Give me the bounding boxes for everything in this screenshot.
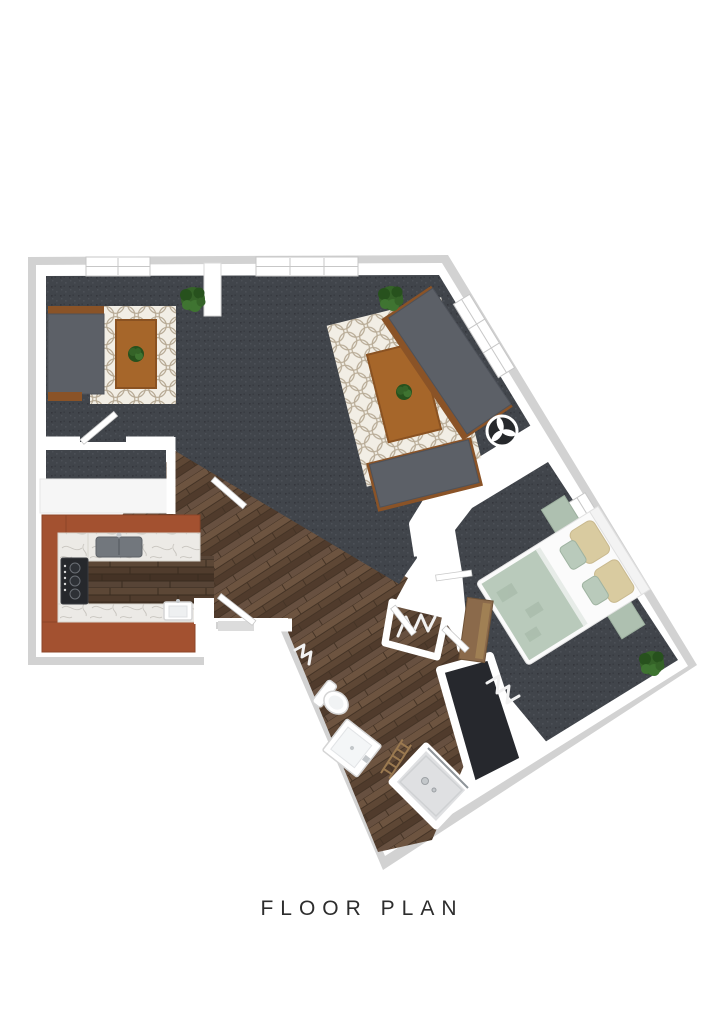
kitchen-cabinet-bottom — [42, 622, 195, 652]
prep-sink-basin — [169, 606, 187, 617]
round-side-table — [487, 416, 517, 446]
sofa-wood-arm — [48, 392, 82, 401]
prep-faucet-icon — [176, 599, 180, 603]
den-lower-wall — [40, 479, 174, 513]
sofa — [48, 314, 104, 394]
shower-drain-icon — [422, 778, 429, 785]
window — [86, 257, 150, 276]
window — [256, 257, 358, 276]
stove-burners — [70, 563, 80, 599]
kitchen-faucet-icon — [117, 533, 122, 538]
page-title: FLOOR PLAN — [0, 897, 724, 921]
window-wall-stub — [204, 263, 221, 316]
table-plant-icon — [128, 346, 144, 362]
den-carpet — [46, 450, 166, 481]
floor-plan-page: FLOOR PLAN — [0, 0, 724, 1024]
floor-plan-drawing — [0, 0, 724, 1024]
shower-control-icon — [432, 788, 436, 792]
